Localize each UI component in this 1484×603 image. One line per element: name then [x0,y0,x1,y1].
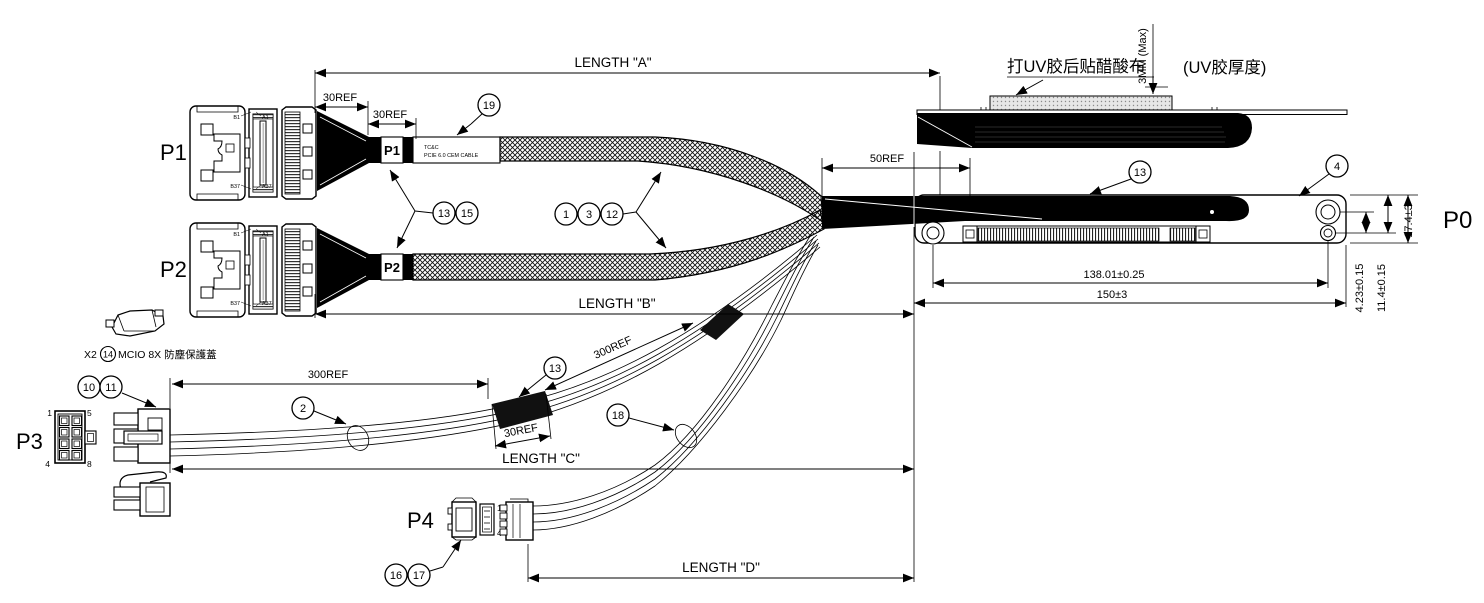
balloon-19: 19 [457,94,500,135]
balloon-13-band: 13 [519,357,566,397]
p2-band-label: P2 [384,260,400,275]
svg-text:50REF: 50REF [870,153,905,165]
svg-text:4: 4 [1334,161,1340,173]
p4-label: P4 [407,508,434,533]
svg-text:A37: A37 [262,301,272,307]
balloon-2: 2 [292,397,346,424]
dimension-50ref: 50REF [822,153,970,197]
svg-text:B37: B37 [230,184,240,190]
svg-text:11: 11 [105,382,116,394]
svg-text:A1: A1 [262,115,269,121]
dimension-length-d: LENGTH "D" [528,544,914,582]
balloon-10-11: 10 11 [78,376,156,407]
p2-connector [190,223,316,317]
svg-text:1: 1 [47,408,52,418]
svg-text:2: 2 [300,403,306,415]
p1-connector [190,106,316,200]
svg-text:13: 13 [549,363,561,375]
svg-text:15: 15 [461,208,473,220]
svg-text:11.4±0.15: 11.4±0.15 [1376,264,1388,312]
p0-edge-fingers [963,226,1210,242]
p3-bottom-view [114,472,170,516]
p3-front-view: 1 5 4 8 [45,408,96,469]
p2-cable-bands: P2 [369,254,413,280]
svg-text:3: 3 [586,209,592,221]
dimension-length-c: LENGTH "C" [170,451,914,473]
p2-label: P2 [160,257,187,282]
cable-assembly-drawing: P1 P2 B1 A1 B37 A37 B1 A1 B37 A37 P1 TC&… [0,0,1484,603]
balloon-14: 14 [103,350,113,360]
svg-text:打UV胶后贴醋酸布: 打UV胶后贴醋酸布 [1007,57,1145,76]
dimension-length-b: LENGTH "B" [315,294,914,318]
balloon-13-top-right: 13 [1090,161,1151,194]
svg-text:LENGTH "C": LENGTH "C" [502,451,580,466]
p0-label: P0 [1443,207,1472,234]
drawing-canvas: P1 P2 B1 A1 B37 A37 B1 A1 B37 A37 P1 TC&… [0,0,1484,603]
p1-band-label: P1 [384,143,400,158]
svg-text:10: 10 [83,382,95,394]
svg-text:1: 1 [563,209,569,221]
svg-text:A37: A37 [262,184,272,190]
svg-text:4.23±0.15: 4.23±0.15 [1354,264,1366,313]
svg-text:300REF: 300REF [592,334,634,361]
p2-boot [317,228,369,308]
balloon-1-3-12: 1 3 12 [555,172,666,248]
dimension-300ref-p3: 300REF [170,369,488,408]
svg-text:5: 5 [87,408,92,418]
p0-side-view [917,96,1347,148]
p3-side-view [114,409,170,463]
svg-text:LENGTH "A": LENGTH "A" [574,55,651,70]
p0-side-overmold [917,113,1252,148]
p1-label: P1 [160,140,187,165]
dimension-board-height: 17.4±3 [1350,195,1418,243]
svg-text:150±3: 150±3 [1097,289,1128,301]
balloon-13-15: 13 15 [390,170,478,248]
dimension-hole-span: 138.01±0.25 [933,241,1328,288]
svg-text:8: 8 [87,459,92,469]
svg-text:B1: B1 [233,232,240,238]
heatshrink-band-p3 [492,391,553,429]
svg-text:17: 17 [413,570,425,582]
p4-side-view [500,499,533,540]
balloon-16-17: 16 17 [385,540,461,586]
svg-text:17.4±3: 17.4±3 [1403,204,1415,238]
p1-boot [317,111,369,191]
dimension-30ref-2: 30REF [368,109,416,139]
svg-text:A1: A1 [262,232,269,238]
p4-housing-view [448,498,476,540]
uv-glue-note: 打UV胶后贴醋酸布 [1007,57,1154,95]
p1-cable-bands: P1 TC&C PCIE 6.0 CEM CABLE [369,137,500,163]
svg-text:4: 4 [45,459,50,469]
braid-sleeve-a [500,137,823,222]
p4-face-view: 1 4 [480,503,502,538]
svg-text:MCIO 8X 防塵保護蓋: MCIO 8X 防塵保護蓋 [118,348,217,361]
svg-text:LENGTH "D": LENGTH "D" [682,560,760,575]
svg-text:12: 12 [606,209,618,221]
acetate-cloth-patch [990,96,1172,110]
svg-text:13: 13 [1134,167,1146,179]
uv-thickness-note: (UV胶厚度) [1183,58,1266,77]
balloon-4: 4 [1299,155,1348,196]
dimension-hole-offset-b: 11.4±0.15 [1376,195,1388,312]
dimension-length-a: LENGTH "A" [315,55,940,195]
svg-text:LENGTH "B": LENGTH "B" [578,296,655,311]
svg-text:19: 19 [483,100,495,112]
mcio-dust-cap [106,310,164,336]
svg-text:16: 16 [390,570,402,582]
svg-text:30REF: 30REF [373,109,408,121]
balloon-18: 18 [607,404,674,430]
svg-text:30REF: 30REF [323,92,358,104]
p3-label: P3 [16,429,43,454]
svg-text:13: 13 [438,208,450,220]
cable-product-label: PCIE 6.0 CEM CABLE [424,153,479,159]
svg-text:X2: X2 [84,349,97,361]
svg-text:B37: B37 [230,301,240,307]
cable-brand-label: TC&C [424,145,439,151]
svg-text:300REF: 300REF [308,369,349,381]
svg-text:B1: B1 [233,115,240,121]
svg-text:138.01±0.25: 138.01±0.25 [1083,269,1144,281]
svg-text:18: 18 [612,410,624,422]
dust-cap-note: X2 14 MCIO 8X 防塵保護蓋 [84,347,217,362]
